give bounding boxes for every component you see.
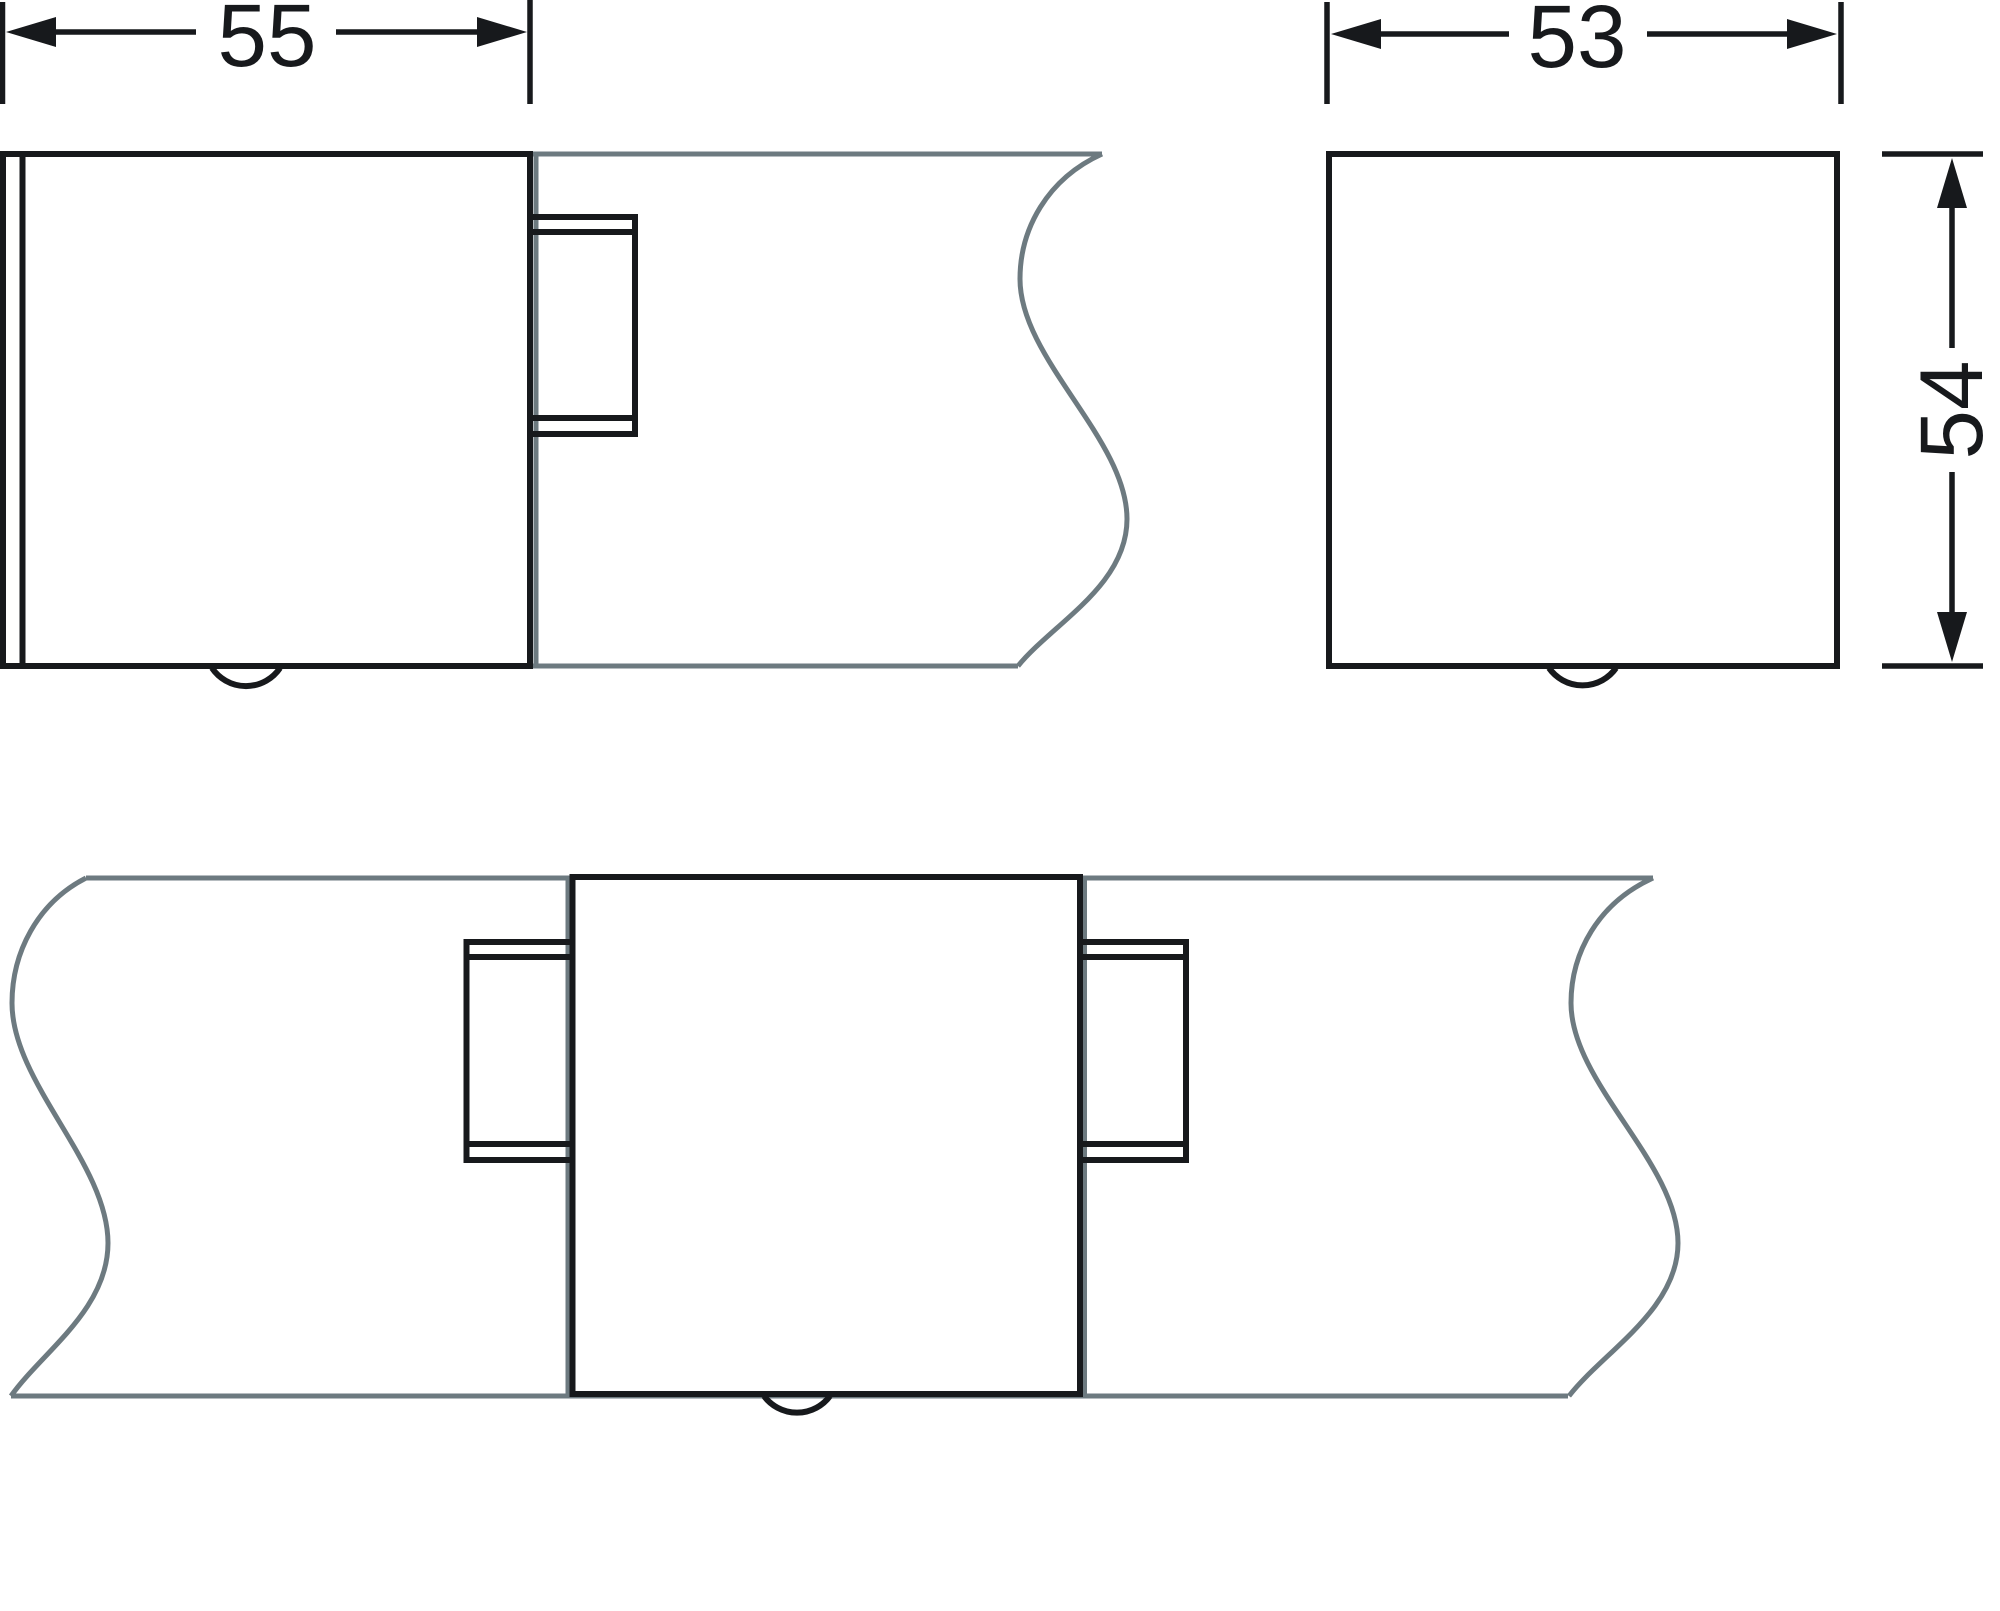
svg-text:55: 55: [218, 0, 317, 85]
svg-text:54: 54: [1901, 361, 2000, 460]
svg-text:53: 53: [1528, 0, 1627, 86]
